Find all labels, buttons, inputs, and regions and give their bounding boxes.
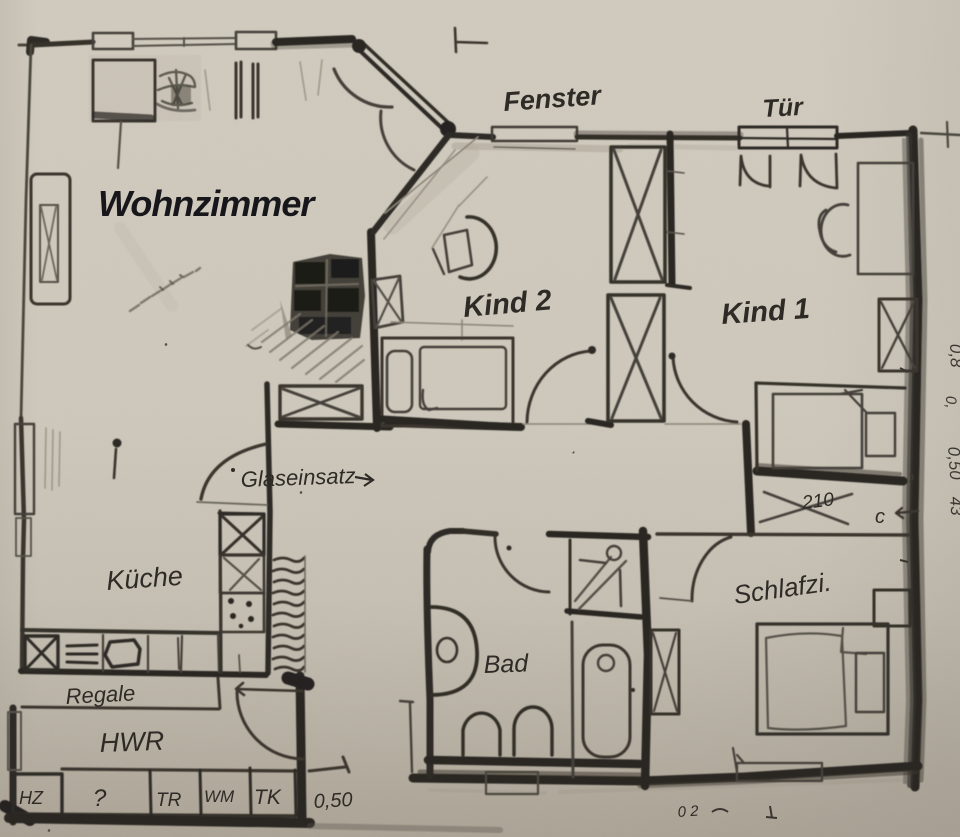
svg-text:Regale: Regale bbox=[65, 680, 136, 709]
svg-text:Kind 1: Kind 1 bbox=[720, 293, 811, 331]
svg-text:Bad: Bad bbox=[483, 649, 530, 679]
svg-text:TK: TK bbox=[254, 786, 282, 809]
svg-text:WM: WM bbox=[204, 787, 235, 806]
svg-text:210: 210 bbox=[800, 489, 835, 514]
svg-text:43: 43 bbox=[946, 496, 960, 517]
svg-text:0,: 0, bbox=[942, 396, 959, 409]
svg-text:0,50: 0,50 bbox=[313, 789, 353, 813]
svg-text:HWR: HWR bbox=[99, 726, 164, 758]
svg-text:0,50: 0,50 bbox=[944, 446, 960, 481]
svg-text:0 2: 0 2 bbox=[677, 803, 700, 821]
svg-text:?: ? bbox=[93, 785, 107, 812]
svg-text:Glaseinsatz: Glaseinsatz bbox=[240, 463, 356, 492]
svg-text:c: c bbox=[875, 506, 885, 528]
svg-text:Tür: Tür bbox=[762, 93, 805, 123]
svg-text:Wohnzimmer: Wohnzimmer bbox=[98, 183, 316, 224]
svg-text:Küche: Küche bbox=[105, 561, 183, 596]
svg-text:HZ: HZ bbox=[19, 788, 44, 808]
svg-text:0,8: 0,8 bbox=[946, 343, 960, 368]
svg-text:TR: TR bbox=[156, 790, 182, 811]
